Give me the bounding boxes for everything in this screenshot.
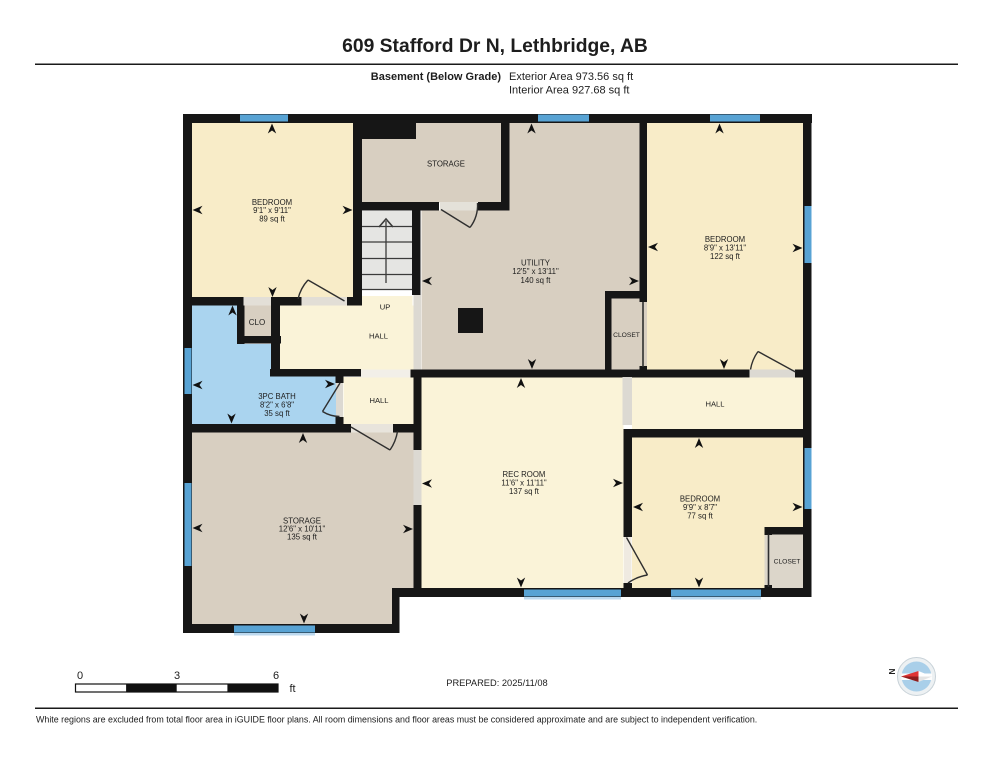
svg-text:Basement (Below Grade): Basement (Below Grade): [371, 71, 502, 83]
svg-text:CLO: CLO: [249, 318, 265, 327]
svg-text:6: 6: [273, 670, 279, 682]
svg-text:122 sq ft: 122 sq ft: [710, 252, 741, 261]
svg-text:0: 0: [77, 670, 83, 682]
svg-text:STORAGE: STORAGE: [427, 160, 465, 169]
svg-text:UP: UP: [380, 303, 391, 312]
svg-text:12'5" x 13'11": 12'5" x 13'11": [512, 267, 559, 276]
svg-text:ft: ft: [289, 683, 295, 695]
svg-text:89 sq ft: 89 sq ft: [259, 214, 285, 223]
svg-text:White regions are excluded fro: White regions are excluded from total fl…: [36, 715, 757, 725]
svg-text:77 sq ft: 77 sq ft: [687, 512, 713, 521]
svg-text:3: 3: [174, 670, 180, 682]
svg-text:PREPARED: 2025/11/08: PREPARED: 2025/11/08: [446, 678, 547, 688]
svg-text:Interior Area 927.68 sq ft: Interior Area 927.68 sq ft: [509, 85, 629, 97]
svg-text:N: N: [887, 668, 897, 674]
svg-text:137 sq ft: 137 sq ft: [509, 487, 540, 496]
svg-text:Exterior Area 973.56 sq ft: Exterior Area 973.56 sq ft: [509, 71, 633, 83]
svg-text:HALL: HALL: [706, 400, 725, 409]
svg-text:609 Stafford Dr N, Lethbridge,: 609 Stafford Dr N, Lethbridge, AB: [342, 36, 648, 57]
svg-text:CLOSET: CLOSET: [613, 332, 640, 339]
svg-text:CLOSET: CLOSET: [774, 559, 801, 566]
svg-text:140 sq ft: 140 sq ft: [521, 276, 552, 285]
svg-text:HALL: HALL: [369, 332, 388, 341]
svg-text:HALL: HALL: [370, 396, 389, 405]
svg-text:35 sq ft: 35 sq ft: [264, 409, 290, 418]
svg-text:135 sq ft: 135 sq ft: [287, 533, 318, 542]
